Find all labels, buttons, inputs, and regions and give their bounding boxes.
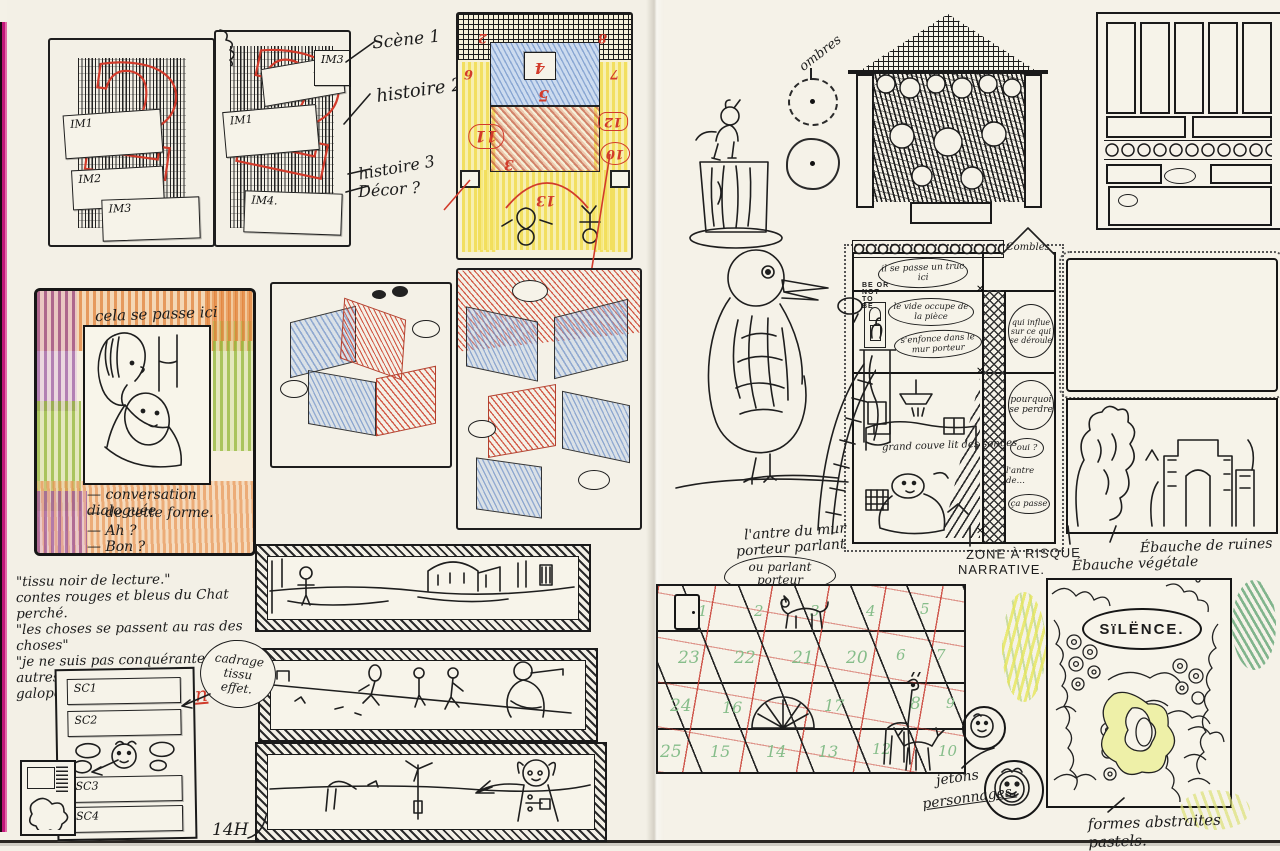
blue-plane [476, 457, 542, 518]
calendar-number: 25 [660, 742, 682, 762]
margin-thumbnail [20, 760, 76, 836]
speech-bubble-icon [372, 290, 386, 299]
storyboard-panel-a: 2 IM1 IM2 IM3 [48, 38, 215, 247]
thumb-rect [27, 767, 55, 789]
calendar-grid-panel: 1 2 3 4 5 23 22 21 20 6 7 24 16 17 8 9 2… [656, 584, 966, 774]
circle-stem [810, 68, 812, 80]
zone-pointer-lines [940, 520, 1140, 550]
strip-panel-1 [255, 544, 591, 632]
calendar-number: 14 [766, 742, 786, 761]
cadrage-arrow [176, 688, 212, 712]
pastels-pointer [1100, 796, 1130, 816]
facade-window [1242, 22, 1272, 114]
facade-small-rect [1106, 164, 1162, 184]
gazebo-roof [858, 14, 1038, 72]
pastel-burst-right [1232, 580, 1276, 670]
calendar-number: 13 [818, 742, 838, 761]
ruins-vegetal-panel [1066, 398, 1278, 534]
time-note: 14H [212, 820, 248, 840]
silence-oval: SïLËNCE. [1082, 608, 1202, 650]
crayon-scene-panel: cela se passe ici — co [34, 288, 256, 556]
red-plane [488, 384, 556, 458]
sequence-item: SC1 [68, 678, 180, 695]
hamlet-line: BE OR [862, 282, 902, 289]
thumbnail-arrow [86, 756, 120, 778]
strip-panel-3 [255, 742, 607, 842]
stage-number-mid: 5 [538, 86, 549, 105]
speech-bubble-icon [392, 286, 408, 297]
attic-label: Combles [1006, 242, 1050, 253]
facade-window [1174, 22, 1204, 114]
image-card: IM1 [222, 104, 320, 158]
gazebo-panel [846, 14, 1050, 226]
scene-line-3: — Ah ? [87, 523, 137, 539]
cat-doodle [776, 588, 836, 632]
jetons-pointer [958, 742, 998, 772]
book-spine-edge [0, 22, 7, 832]
antre-note: l'antre de… [1006, 466, 1054, 486]
sequence-item: SC2 [68, 710, 180, 727]
calendar-number: 20 [846, 648, 868, 668]
blue-plane [562, 391, 630, 463]
stage-number-upper-right: 7 [610, 66, 619, 81]
wall-line [1004, 290, 1006, 542]
sequence-item: SC4 [70, 806, 182, 823]
image-card: IM4. [243, 190, 342, 235]
calendar-number: 2 [754, 602, 764, 620]
facade-window [1106, 22, 1136, 114]
image-card-label: IM3 [102, 197, 198, 215]
stage-number-upper-left: 6 [464, 66, 473, 81]
runners-scene-sketch [271, 661, 583, 727]
crayon-left-purple [37, 291, 77, 411]
village-scene-sketch [268, 557, 576, 617]
abstract-panel-c [270, 282, 452, 468]
facade-scallop-hedge [1104, 140, 1272, 160]
chimney-shaft-hatch [984, 290, 1004, 542]
image-card-label: IM2 [72, 167, 163, 187]
speech-bubble-outline [280, 380, 308, 398]
fan-wheel-doodle [750, 686, 816, 730]
ruins-vegetal-sketch [1068, 400, 1272, 528]
pastel-burst-left [1002, 592, 1046, 702]
stage-number-left-oval: 11 [468, 124, 504, 149]
facade-window [1140, 22, 1170, 114]
margin-scribble [206, 26, 236, 66]
blue-plane [308, 370, 376, 436]
facade-small-rect [1210, 164, 1272, 184]
red-plane [340, 298, 406, 381]
calendar-number: 9 [946, 696, 955, 712]
quote-line: contes rouges et bleus du Chat perché. [16, 586, 257, 622]
deer-doodle [890, 726, 950, 772]
thumb-blob [26, 792, 70, 830]
scene-inner-drawing [83, 325, 211, 485]
facade-panel [1096, 12, 1280, 230]
door-doodle [674, 594, 700, 630]
calendar-number: 22 [734, 648, 756, 668]
calendar-number: 23 [678, 648, 700, 668]
image-card-label: IM4. [245, 191, 341, 209]
speech-bubble-outline [512, 280, 548, 302]
x-mark: ✕ [976, 284, 984, 295]
house-bubble-oui: oui ? [1017, 443, 1038, 453]
gazebo-column-right [1024, 74, 1042, 208]
facade-window [1208, 22, 1238, 114]
x-mark: ✕ [976, 366, 984, 377]
time-flourish [244, 812, 274, 842]
stage-number-top-left: 2 [478, 30, 487, 45]
image-card: IM3 [101, 196, 200, 241]
stage-number-top-right: 8 [598, 30, 607, 45]
face-with-bubbles [66, 737, 187, 775]
calendar-number: 24 [670, 696, 692, 716]
calendar-number: 4 [866, 602, 876, 620]
sequence-item: SC3 [69, 776, 181, 793]
calendar-number: 16 [722, 698, 742, 717]
ladder-sketch [806, 360, 876, 540]
speech-bubble-outline [412, 320, 440, 338]
image-card: IM1 [63, 109, 164, 160]
calendar-number: 5 [920, 600, 930, 618]
silence-label: SïLËNCE. [1099, 621, 1184, 638]
stage-number-square: 4 [535, 59, 545, 77]
abstract-panel-d [456, 268, 642, 530]
house-bubble-wall: s'enfonce dans le mur porteur [895, 332, 982, 356]
silence-doodle-panel: SïLËNCE. [1046, 578, 1232, 808]
calendar-number: 21 [792, 648, 814, 668]
facade-tiny-bubble [1118, 194, 1138, 207]
scene-line-4: — Bon ? [87, 539, 145, 555]
house-bubble-influence: qui influe sur ce qui se déroule [1009, 318, 1053, 345]
calendar-number: 17 [824, 696, 844, 715]
strip-panel-2 [258, 648, 598, 742]
thumb-hatch [56, 766, 68, 792]
callout-lines [340, 34, 380, 204]
red-plane [376, 366, 436, 437]
gazebo-garland [872, 72, 1024, 202]
crayon-bottom-purple [37, 491, 87, 553]
gazebo-base [910, 202, 992, 224]
calendar-number: 7 [936, 646, 946, 664]
sketchbook-spread: 2 IM1 IM2 IM3 2 IM2 IM3 IM1 IM4. Scène 1… [0, 0, 1280, 851]
empty-frame-panel [1066, 258, 1278, 392]
calendar-number: 15 [710, 742, 730, 761]
facade-band [1192, 116, 1272, 138]
scene-line-2: — de cette forme. [87, 505, 214, 521]
speech-bubble-outline [578, 470, 610, 490]
zone-risque-label-2: NARRATIVE. [958, 562, 1045, 577]
house-bubble-ca-passe: ça passe [1011, 499, 1048, 509]
facade-bubble [1164, 168, 1196, 184]
stage-number-right-tab: 12 [598, 112, 628, 131]
mother-child-sketch [85, 327, 205, 479]
facade-lower-rect [1108, 186, 1272, 226]
facade-band [1106, 116, 1186, 138]
speech-bubble-outline [468, 420, 496, 438]
clothesline-scene-sketch [268, 755, 592, 827]
calendar-number: 6 [896, 646, 906, 664]
house-bubble-perdre: pourquoi se perdre [1009, 395, 1053, 415]
